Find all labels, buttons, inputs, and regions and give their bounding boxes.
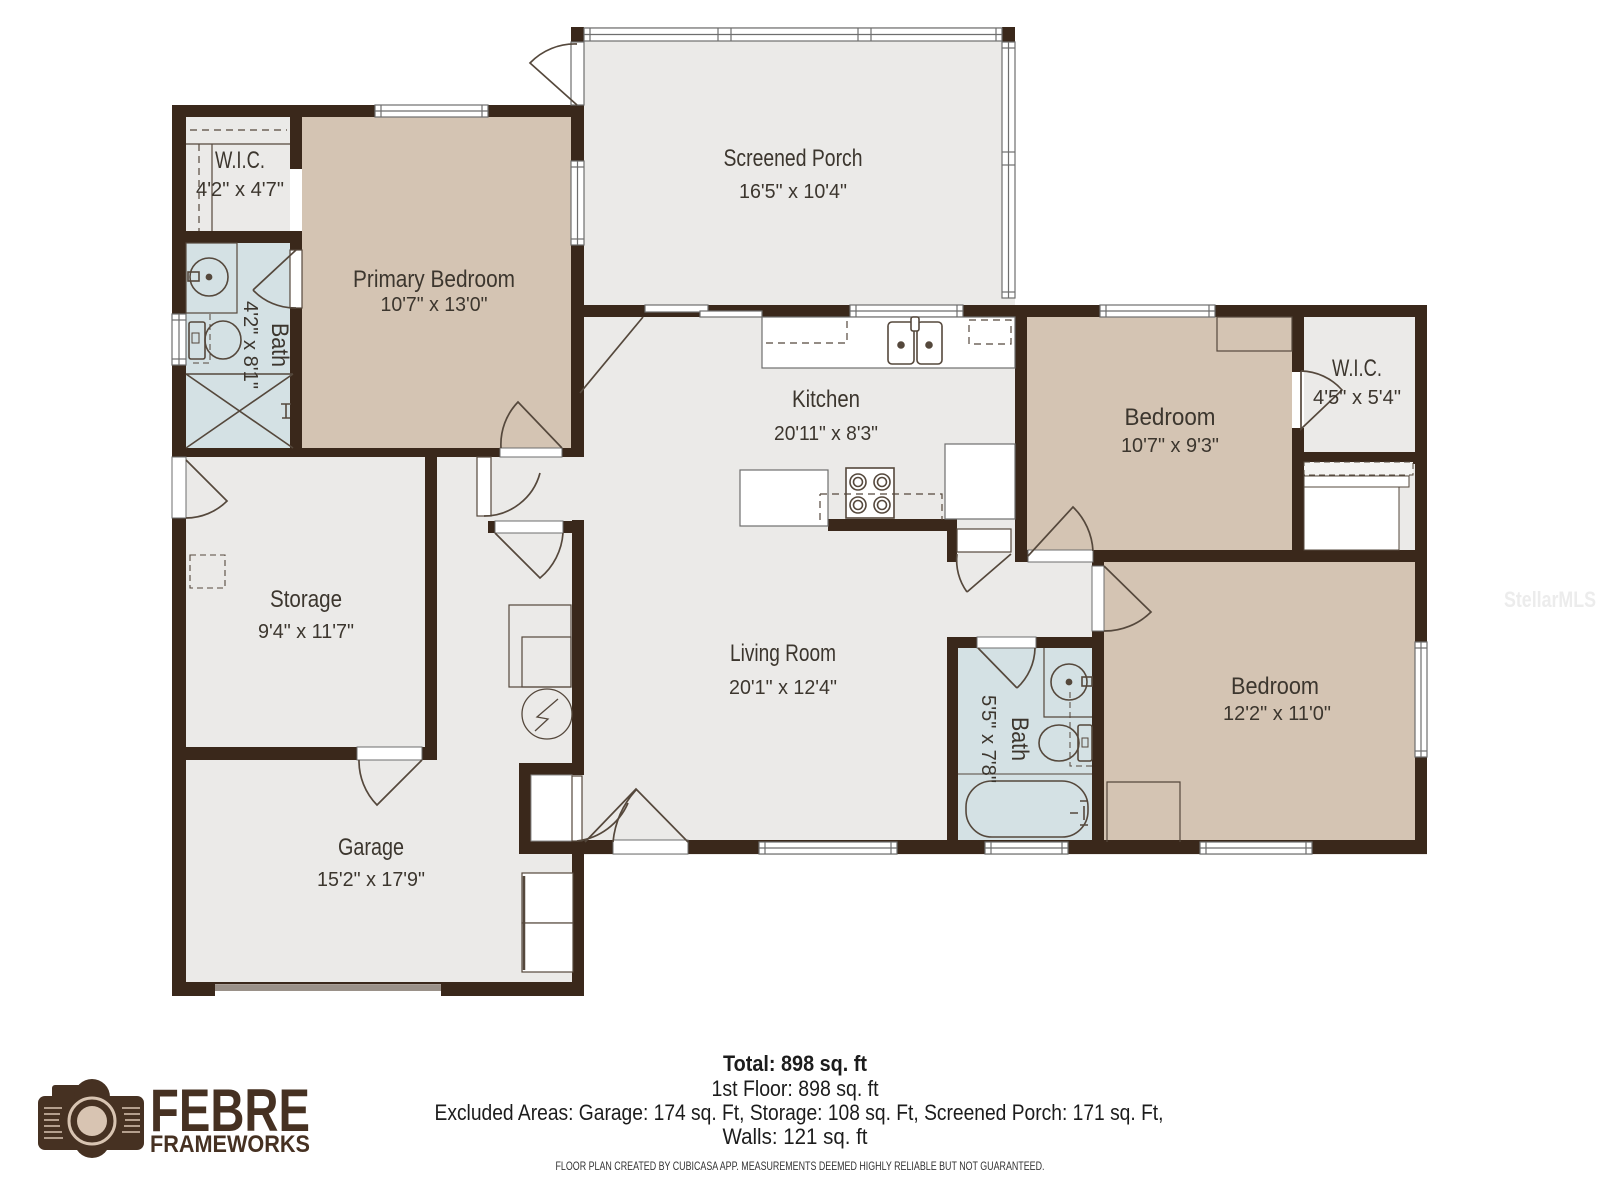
svg-text:4'2" x 4'7": 4'2" x 4'7" bbox=[196, 179, 284, 201]
svg-text:StellarMLS: StellarMLS bbox=[1504, 587, 1596, 612]
svg-text:Primary Bedroom: Primary Bedroom bbox=[353, 266, 515, 293]
svg-text:20'11" x 8'3": 20'11" x 8'3" bbox=[774, 423, 878, 445]
svg-text:9'4" x 11'7": 9'4" x 11'7" bbox=[258, 621, 354, 643]
svg-text:Storage: Storage bbox=[270, 586, 342, 613]
svg-text:15'2" x 17'9": 15'2" x 17'9" bbox=[317, 869, 425, 891]
svg-text:Bedroom: Bedroom bbox=[1125, 404, 1216, 431]
svg-text:5'5" x 7'8": 5'5" x 7'8" bbox=[977, 695, 999, 783]
svg-text:Kitchen: Kitchen bbox=[792, 386, 860, 413]
svg-text:FLOOR PLAN CREATED BY CUBICASA: FLOOR PLAN CREATED BY CUBICASA APP. MEAS… bbox=[556, 1159, 1045, 1173]
svg-text:12'2" x 11'0": 12'2" x 11'0" bbox=[1223, 703, 1331, 725]
svg-text:Total: 898 sq. ft: Total: 898 sq. ft bbox=[723, 1051, 868, 1076]
svg-text:Garage: Garage bbox=[338, 834, 404, 861]
svg-text:1st Floor: 898 sq. ft: 1st Floor: 898 sq. ft bbox=[712, 1076, 879, 1101]
svg-text:Bedroom: Bedroom bbox=[1231, 673, 1319, 700]
svg-text:10'7" x 9'3": 10'7" x 9'3" bbox=[1121, 435, 1219, 457]
svg-text:20'1" x 12'4": 20'1" x 12'4" bbox=[729, 677, 837, 699]
svg-text:Screened Porch: Screened Porch bbox=[724, 145, 863, 172]
svg-text:10'7" x 13'0": 10'7" x 13'0" bbox=[381, 294, 488, 316]
svg-text:4'2" x 8'1": 4'2" x 8'1" bbox=[239, 301, 261, 389]
svg-text:Walls: 121 sq. ft: Walls: 121 sq. ft bbox=[723, 1124, 868, 1149]
svg-text:FRAMEWORKS: FRAMEWORKS bbox=[150, 1131, 310, 1158]
svg-text:Excluded Areas: Garage: 174 sq: Excluded Areas: Garage: 174 sq. Ft, Stor… bbox=[435, 1100, 1164, 1125]
svg-text:16'5" x 10'4": 16'5" x 10'4" bbox=[739, 181, 847, 203]
svg-text:W.I.C.: W.I.C. bbox=[215, 147, 265, 174]
svg-text:4'5" x 5'4": 4'5" x 5'4" bbox=[1313, 387, 1401, 409]
svg-text:Living Room: Living Room bbox=[730, 640, 836, 667]
svg-text:Bath: Bath bbox=[1006, 717, 1033, 761]
svg-text:W.I.C.: W.I.C. bbox=[1332, 355, 1382, 382]
svg-text:Bath: Bath bbox=[266, 323, 293, 367]
